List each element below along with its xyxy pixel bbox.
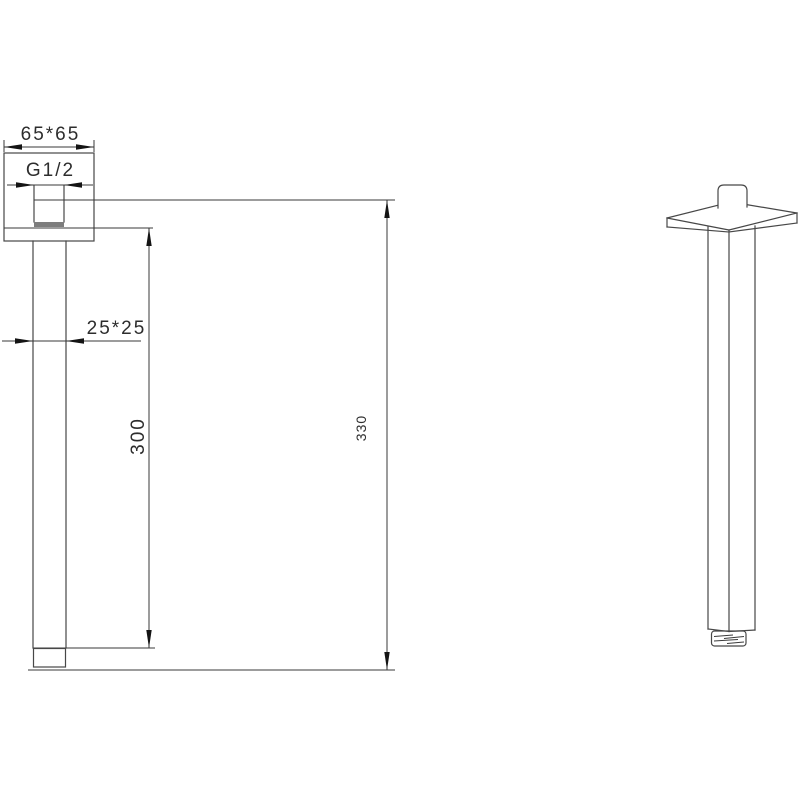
dim-label-flange-size: 65*65 <box>8 125 93 145</box>
dim-label-arm-length: 300 <box>129 406 149 466</box>
arrowhead <box>64 182 82 187</box>
thread-bore-bottom <box>34 222 64 227</box>
arrowhead <box>66 338 84 343</box>
drawing-linework <box>0 0 800 800</box>
arrowhead <box>76 144 94 149</box>
arrowhead <box>146 228 151 246</box>
dim-25x25 <box>2 338 141 343</box>
arrowhead <box>15 338 33 343</box>
technical-drawing-canvas: 65*65 G1/2 25*25 300 330 <box>0 0 800 800</box>
dim-label-thread-size: G1/2 <box>8 161 93 181</box>
dim-g12 <box>7 182 93 187</box>
front-view <box>2 140 395 670</box>
arrowhead <box>384 652 389 670</box>
arrowhead <box>16 182 34 187</box>
tip-thread-hatching <box>714 635 744 644</box>
stub-fill <box>718 185 747 208</box>
tube-body-fill <box>708 226 755 632</box>
side-view <box>667 185 797 646</box>
dim-label-arm-section: 25*25 <box>74 319 159 339</box>
dim-330 <box>34 200 395 670</box>
dim-label-overall-length: 330 <box>353 406 369 450</box>
arrowhead <box>146 630 151 648</box>
tip-outline <box>34 649 66 668</box>
arrowhead <box>4 144 22 149</box>
arrowhead <box>384 200 389 218</box>
